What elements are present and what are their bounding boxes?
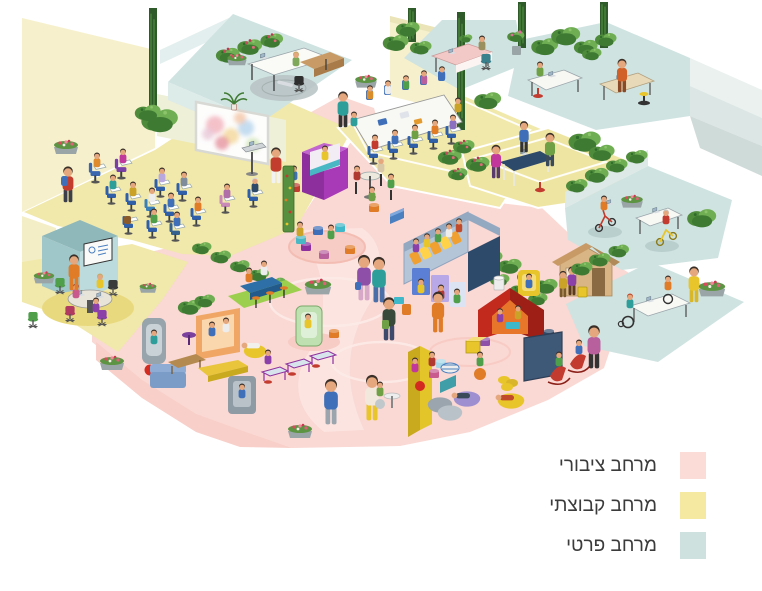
legend-item-public: מרחב ציבורי: [559, 452, 706, 479]
legend: מרחב ציבורי מרחב קבוצתי מרחב פרטי: [549, 452, 706, 559]
legend-item-group: מרחב קבוצתי: [549, 492, 706, 519]
legend-swatch-private: [680, 532, 706, 559]
legend-item-private: מרחב פרטי: [566, 532, 706, 559]
legend-label-public: מרחב ציבורי: [559, 452, 657, 479]
lounge-study-booth: [228, 376, 256, 414]
legend-label-private: מרחב פרטי: [566, 532, 657, 559]
vertical-garden-panel: [283, 166, 294, 232]
open-space-types-figure: מרחב ציבורי מרחב קבוצתי מרחב פרטי: [0, 0, 762, 591]
white-side-table: [494, 276, 504, 290]
yellow-armchair: [518, 270, 540, 296]
legend-swatch-group: [680, 492, 706, 519]
legend-label-group: מרחב קבוצתי: [549, 492, 657, 519]
legend-swatch-public: [680, 452, 706, 479]
